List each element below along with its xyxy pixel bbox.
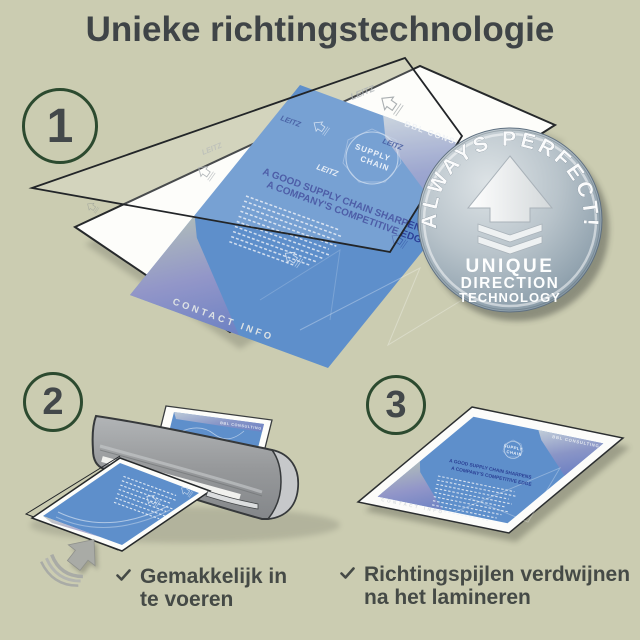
checklist-item-arrows-disappear: Richtingspijlen verdwijnen na het lamine… — [340, 563, 630, 609]
step-1-circle: 1 — [22, 88, 98, 164]
step-3-circle: 3 — [366, 375, 426, 435]
check-icon — [116, 569, 131, 582]
illustration-layer: LEITZ LEITZ SUPPLY CHAIN — [0, 0, 640, 640]
step-3-number: 3 — [385, 384, 406, 427]
checklist-line: Richtingspijlen verdwijnen — [364, 563, 630, 586]
checklist-line: na het lamineren — [364, 586, 630, 609]
step-2-circle: 2 — [23, 372, 83, 432]
always-perfect-badge: ALWAYS PERFECT! UNIQUE DIRECTION TECHNOL… — [418, 128, 609, 321]
infographic-canvas: Unieke richtingstechnologie — [0, 0, 640, 640]
checklist-text: Gemakkelijk in te voeren — [140, 565, 287, 611]
checklist-text: Richtingspijlen verdwijnen na het lamine… — [364, 563, 630, 609]
checklist-item-easy-feed: Gemakkelijk in te voeren — [116, 565, 287, 611]
step-2-number: 2 — [42, 381, 63, 424]
checklist-line: Gemakkelijk in — [140, 565, 287, 588]
direction-arrow-icon — [85, 200, 99, 214]
badge-line3: TECHNOLOGY — [459, 290, 561, 305]
checklist-line: te voeren — [140, 588, 287, 611]
step-1-number: 1 — [47, 99, 74, 154]
check-icon — [340, 567, 355, 580]
badge-line1: UNIQUE — [466, 256, 555, 277]
